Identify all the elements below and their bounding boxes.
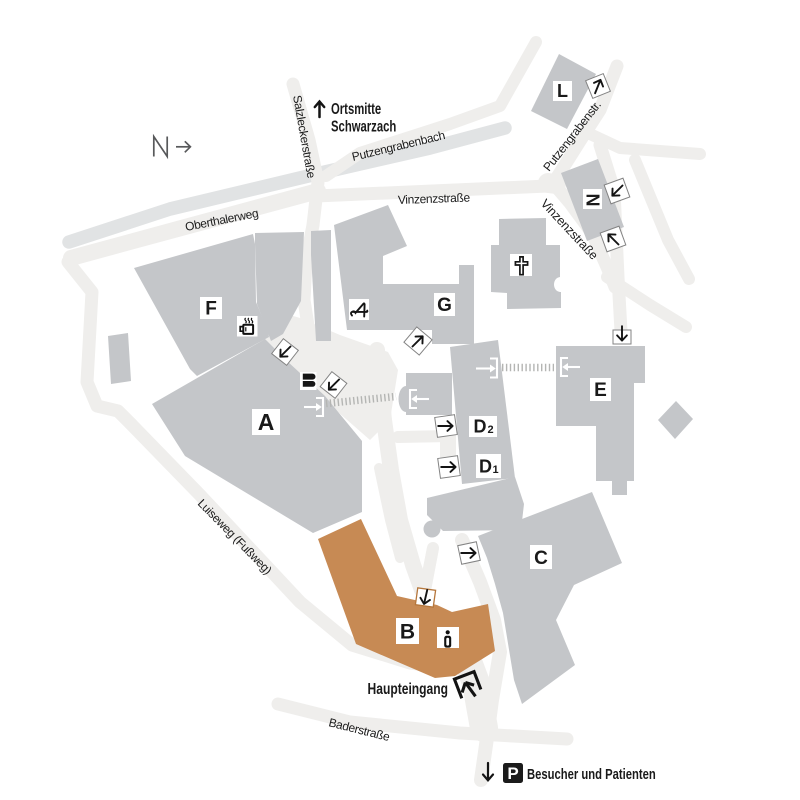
- svg-text:A: A: [258, 409, 275, 435]
- svg-text:Besucher und Patienten: Besucher und Patienten: [527, 765, 656, 782]
- svg-text:Ortsmitte: Ortsmitte: [331, 100, 382, 117]
- svg-text:G: G: [437, 295, 452, 316]
- svg-text:Schwarzach: Schwarzach: [331, 118, 396, 135]
- svg-text:Vinzenzstraße: Vinzenzstraße: [398, 190, 471, 207]
- svg-text:L: L: [557, 81, 568, 101]
- svg-text:E: E: [594, 380, 607, 401]
- svg-text:N: N: [583, 194, 603, 207]
- svg-text:B: B: [400, 621, 415, 644]
- svg-text:F: F: [205, 299, 217, 320]
- svg-text:Haupteingang: Haupteingang: [368, 680, 448, 698]
- svg-text:D: D: [479, 457, 492, 477]
- svg-text:2: 2: [487, 424, 493, 436]
- svg-text:P: P: [507, 764, 518, 783]
- svg-text:1: 1: [492, 464, 498, 476]
- svg-text:C: C: [534, 548, 548, 569]
- svg-text:D: D: [474, 417, 487, 437]
